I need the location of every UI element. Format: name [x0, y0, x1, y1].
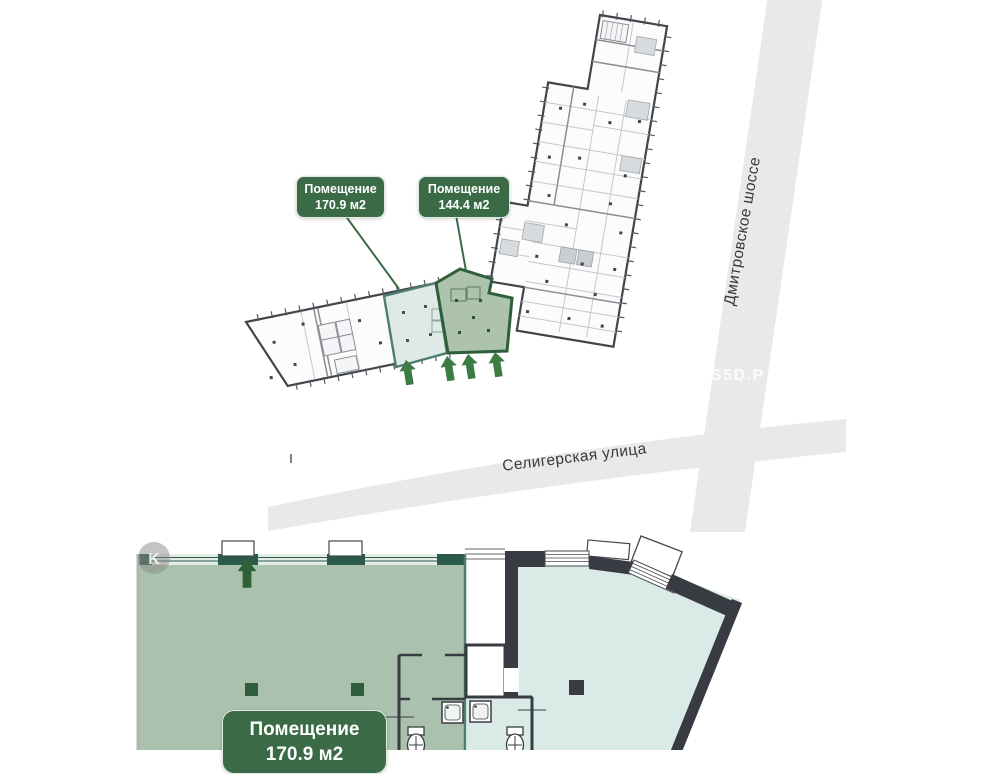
- window-bay: [329, 541, 362, 556]
- watermark-text: S5D.Р: [711, 367, 765, 384]
- sink-icon: [470, 701, 491, 722]
- premises-label-area: 144.4 м2: [439, 197, 490, 213]
- k-marker: K: [138, 542, 170, 574]
- room-label-area: 170.9 м2: [266, 742, 343, 767]
- window-bay: [222, 541, 254, 556]
- window-strip: [152, 554, 437, 565]
- building-tower: [482, 3, 670, 347]
- column: [351, 683, 364, 696]
- column: [569, 680, 584, 695]
- toilet-icon: [507, 727, 524, 750]
- sink-icon: [442, 702, 463, 723]
- page: { "map": { "premises_labels": [ {"title"…: [0, 0, 1000, 750]
- shaft-duct: [465, 549, 505, 697]
- premises-label-title: Помещение: [304, 181, 376, 197]
- premises-label-title: Помещение: [428, 181, 500, 197]
- room-label-title: Помещение: [250, 717, 360, 742]
- site-and-plan-canvas: S5D.Р Дмитровское шоссе Селигерская улиц…: [0, 0, 1000, 750]
- svg-text:K: K: [148, 551, 160, 568]
- premises-label-170[interactable]: Помещение 170.9 м2: [296, 176, 385, 218]
- floor-plan-room-label[interactable]: Помещение 170.9 м2: [222, 710, 387, 774]
- premises-label-144[interactable]: Помещение 144.4 м2: [418, 176, 510, 218]
- entrance-arrow-icon: [487, 351, 507, 378]
- window-hatch: [545, 551, 589, 566]
- premises-label-area: 170.9 м2: [315, 197, 366, 213]
- door-opening: [504, 668, 519, 692]
- toilet-icon: [408, 727, 425, 750]
- road-seligerskaya-ulitsa: [268, 419, 846, 531]
- entrance-arrow-icon: [460, 353, 480, 380]
- column: [245, 683, 258, 696]
- room-144-area: [467, 536, 740, 750]
- entrance-arrow-icon: [439, 355, 459, 382]
